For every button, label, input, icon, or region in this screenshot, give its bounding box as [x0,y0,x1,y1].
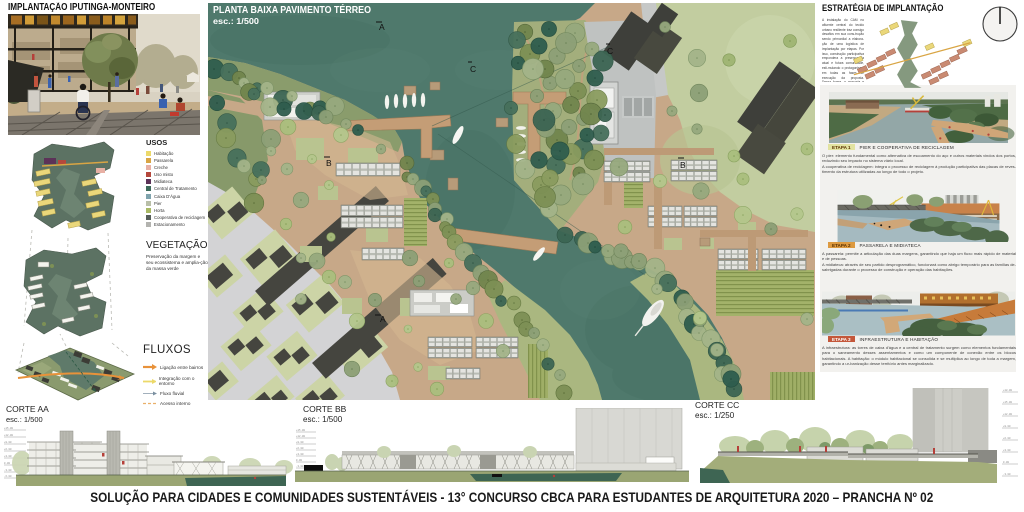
svg-text:-3.00: -3.00 [1003,473,1011,476]
svg-text:B: B [326,158,332,168]
svg-text:A: A [379,22,385,32]
svg-text:+3.00: +3.00 [296,453,304,456]
svg-text:+9.00: +9.00 [296,441,304,444]
svg-text:+15.00: +15.00 [4,427,14,430]
svg-text:C: C [607,46,613,56]
svg-text:+15.00: +15.00 [296,429,306,432]
svg-text:+9.00: +9.00 [1003,425,1011,428]
svg-text:+3.00: +3.00 [1003,449,1011,452]
svg-text:+6.00: +6.00 [1003,437,1011,440]
svg-text:+6.00: +6.00 [296,447,304,450]
svg-text:+12.00: +12.00 [1003,413,1013,416]
svg-text:+18.00: +18.00 [1003,389,1013,392]
svg-text:+9.00: +9.00 [4,441,12,444]
svg-text:-3.00: -3.00 [296,465,304,468]
svg-text:+6.00: +6.00 [4,448,12,451]
svg-text:+3.00: +3.00 [4,455,12,458]
svg-text:PLANTA BAIXA PAVIMENTO TÉRREO: PLANTA BAIXA PAVIMENTO TÉRREO [213,3,371,16]
svg-text:+12.00: +12.00 [4,434,14,437]
svg-text:-3.00: -3.00 [4,469,12,472]
svg-text:C: C [470,64,476,74]
svg-text:+15.00: +15.00 [1003,401,1013,404]
svg-text:esc.: 1/500: esc.: 1/500 [213,16,259,26]
svg-text:0.00: 0.00 [4,462,11,465]
svg-text:B: B [680,160,686,170]
svg-text:+12.00: +12.00 [296,435,306,438]
svg-text:0.00: 0.00 [296,459,303,462]
svg-text:0.00: 0.00 [1003,461,1010,464]
svg-text:-6.00: -6.00 [4,475,12,478]
